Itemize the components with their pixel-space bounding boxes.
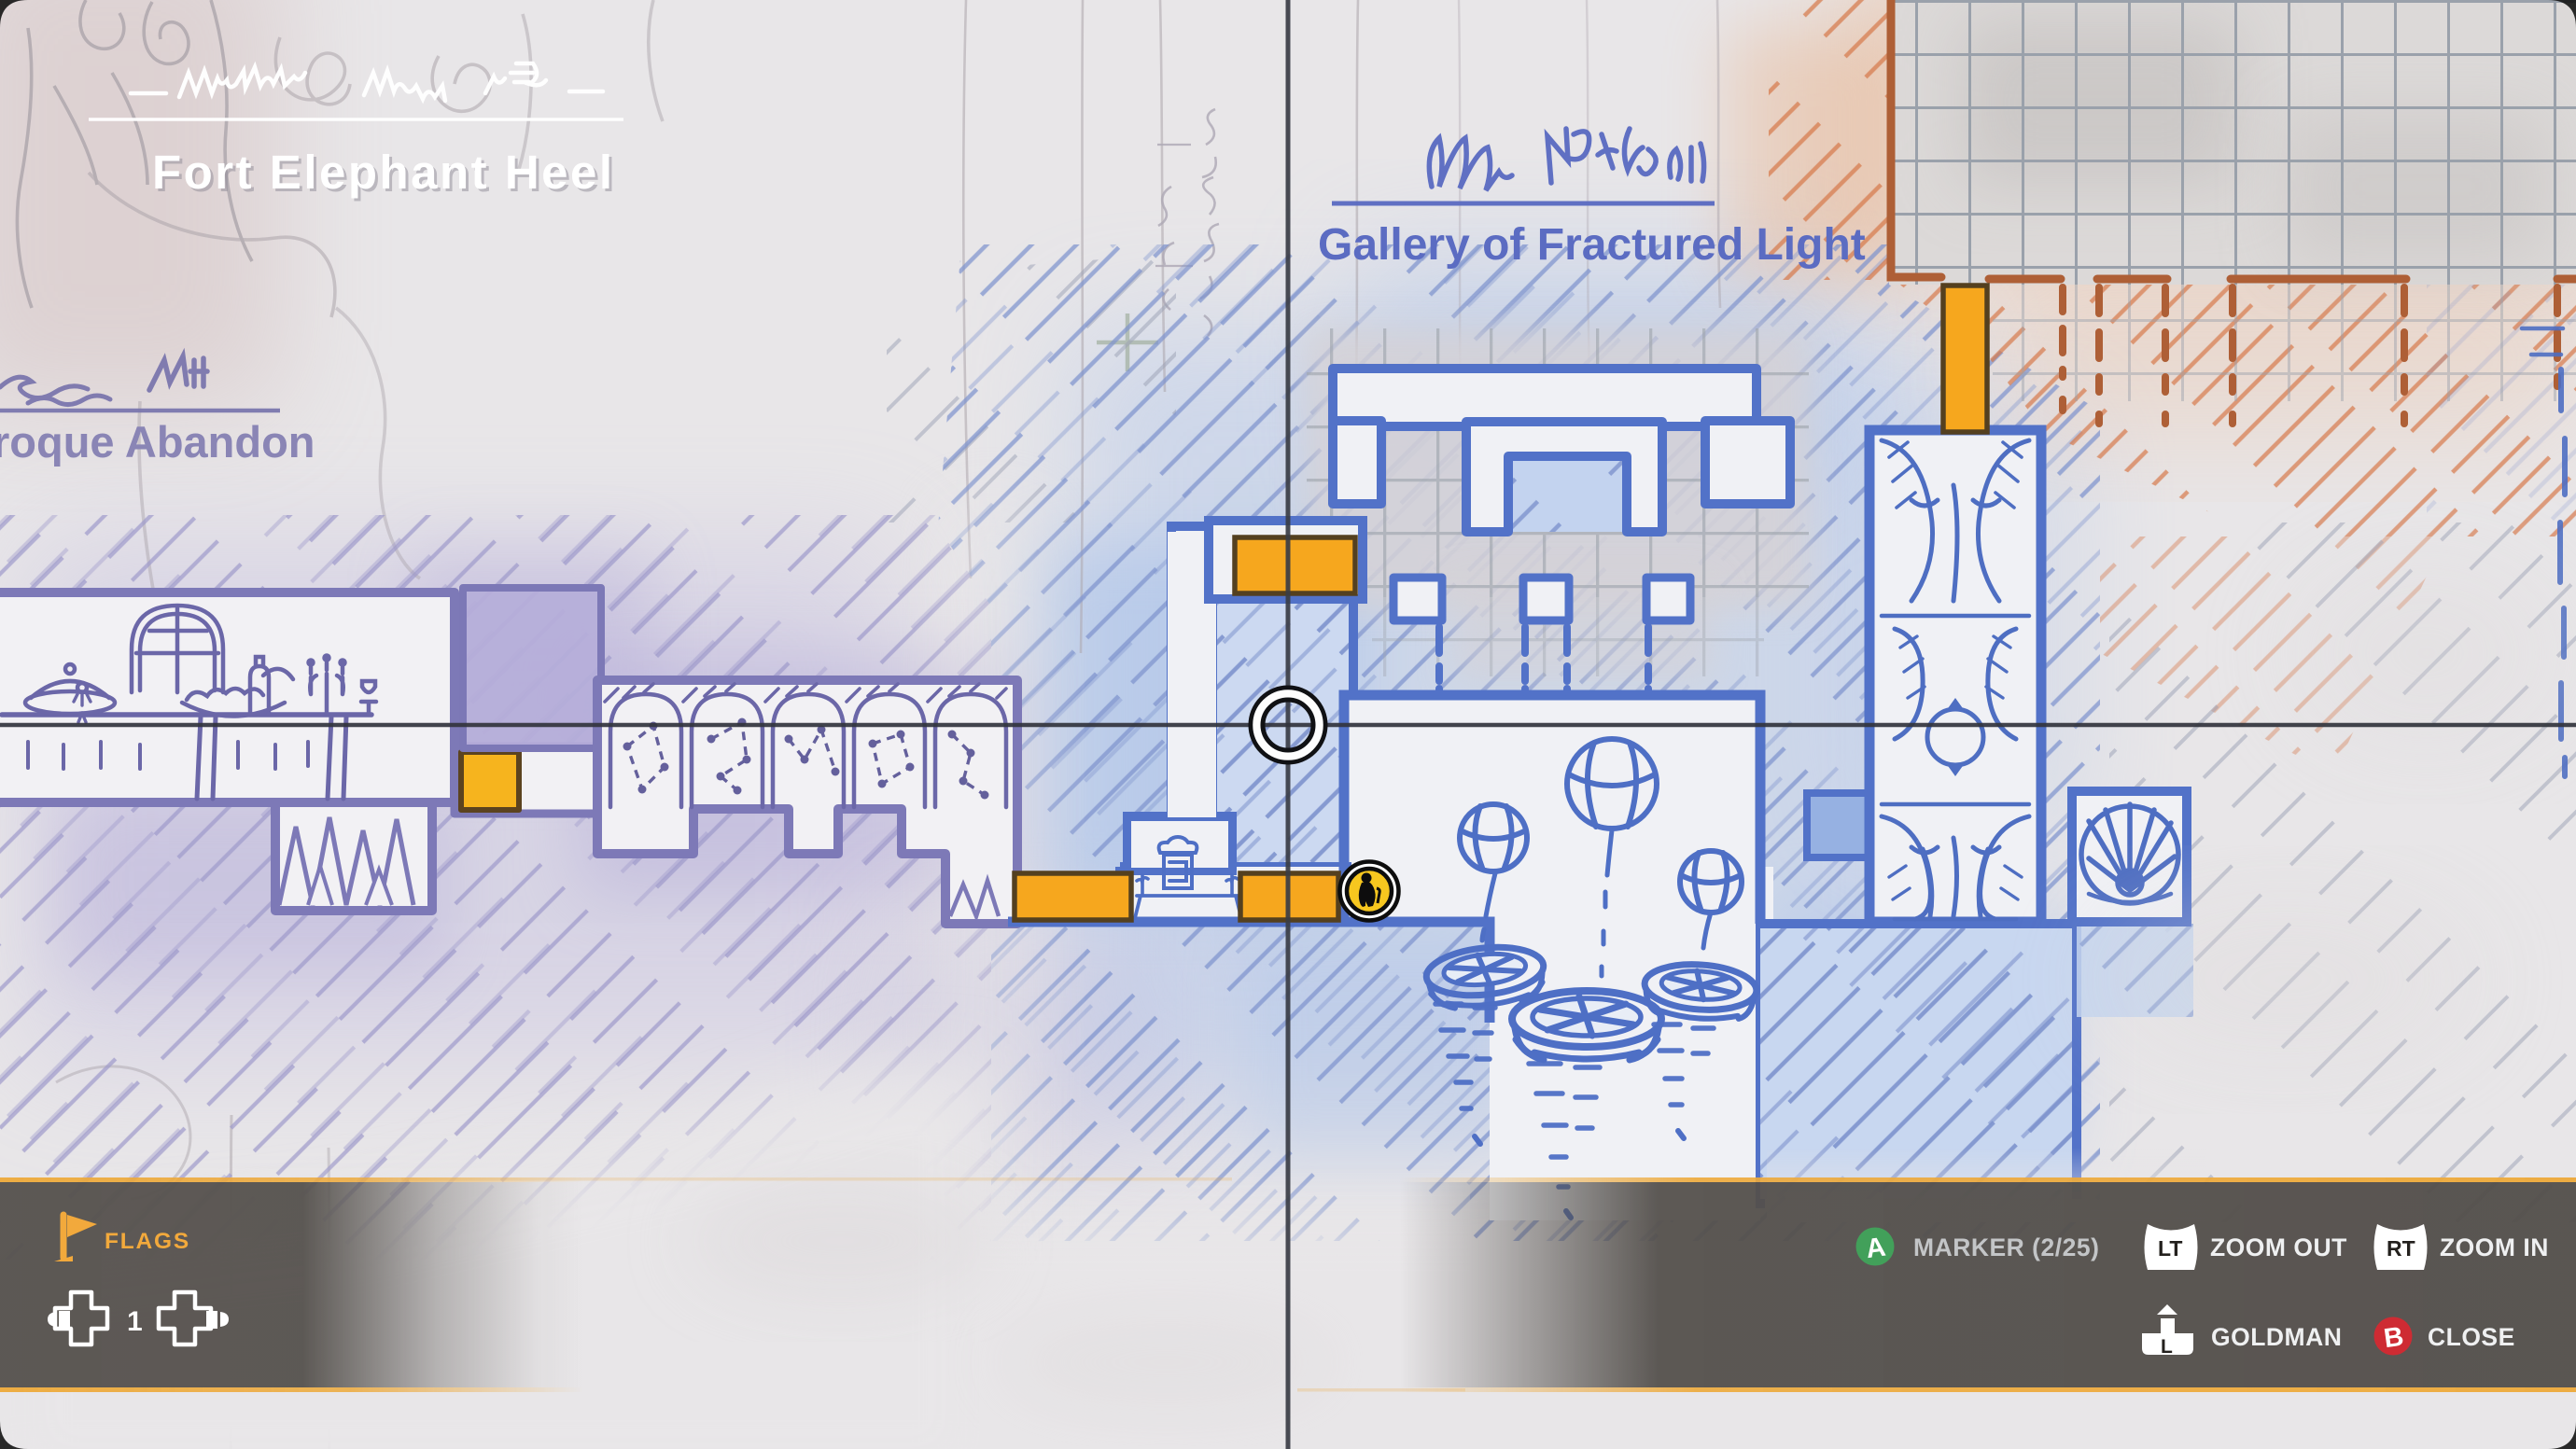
- svg-text:ZOOM IN: ZOOM IN: [2440, 1233, 2549, 1261]
- svg-text:RT: RT: [2387, 1236, 2415, 1261]
- svg-text:ZOOM OUT: ZOOM OUT: [2210, 1233, 2347, 1261]
- svg-text:LT: LT: [2158, 1236, 2182, 1261]
- svg-text:GOLDMAN: GOLDMAN: [2211, 1323, 2342, 1351]
- svg-text:MARKER (2/25): MARKER (2/25): [1913, 1233, 2099, 1261]
- svg-text:CLOSE: CLOSE: [2428, 1323, 2515, 1351]
- svg-text:A: A: [1864, 1233, 1887, 1265]
- svg-text:FLAGS: FLAGS: [105, 1229, 190, 1254]
- svg-text:Gallery of Fractured Light: Gallery of Fractured Light: [1318, 220, 1866, 270]
- svg-text:roque Abandon: roque Abandon: [0, 417, 315, 467]
- svg-text:Fort Elephant Heel: Fort Elephant Heel: [152, 146, 615, 199]
- svg-text:1: 1: [127, 1306, 143, 1337]
- svg-text:L: L: [2161, 1336, 2173, 1358]
- svg-text:B: B: [2382, 1322, 2405, 1355]
